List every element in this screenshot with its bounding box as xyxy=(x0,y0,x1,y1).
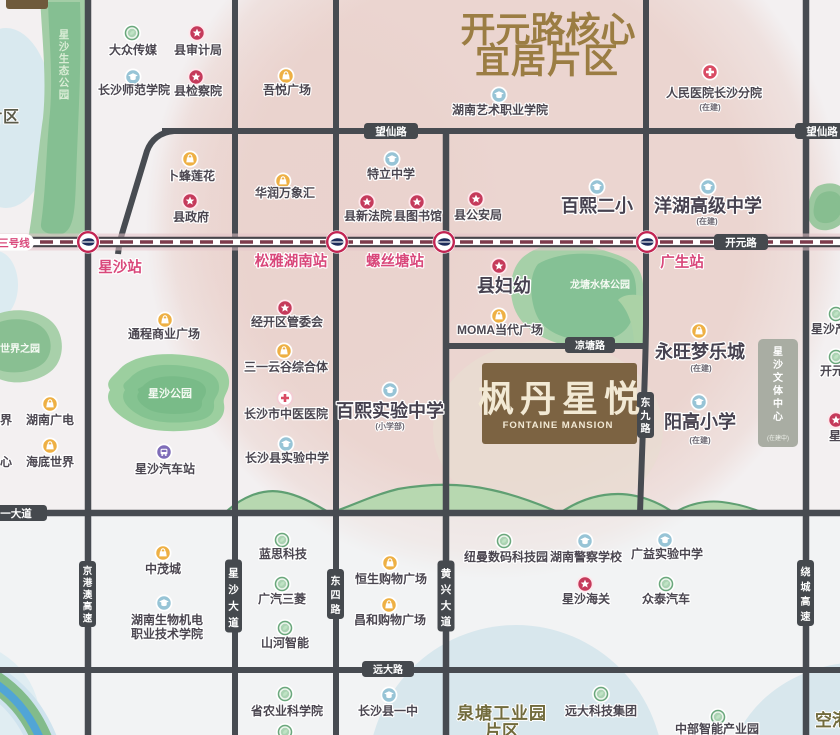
svg-text:宜居片区: 宜居片区 xyxy=(475,42,619,81)
svg-text:海底世界: 海底世界 xyxy=(26,454,74,469)
svg-text:永旺梦乐城: 永旺梦乐城 xyxy=(654,341,745,362)
svg-text:星沙公园: 星沙公园 xyxy=(148,387,192,400)
svg-text:县审计局: 县审计局 xyxy=(174,42,222,57)
svg-text:湖南艺术职业学院: 湖南艺术职业学院 xyxy=(452,102,548,117)
svg-text:中茂城: 中茂城 xyxy=(145,561,181,576)
svg-text:洋湖高级中学: 洋湖高级中学 xyxy=(654,195,762,216)
svg-text:东四路: 东四路 xyxy=(331,574,342,616)
svg-text:经开区管委会: 经开区管委会 xyxy=(251,314,324,329)
svg-text:湖南广电: 湖南广电 xyxy=(26,412,74,427)
svg-text:三一云谷综合体: 三一云谷综合体 xyxy=(244,359,329,374)
svg-text:长沙师范学院: 长沙师范学院 xyxy=(98,82,170,97)
svg-text:(在建): (在建) xyxy=(689,435,711,445)
svg-text:众泰汽车: 众泰汽车 xyxy=(642,591,690,606)
svg-text:(在建): (在建) xyxy=(699,102,721,112)
svg-text:百熙二小: 百熙二小 xyxy=(561,196,633,216)
svg-text:星沙产: 星沙产 xyxy=(811,321,840,336)
svg-text:湖南生物机电: 湖南生物机电 xyxy=(131,612,203,627)
svg-text:县政府: 县政府 xyxy=(173,209,209,224)
svg-text:星: 星 xyxy=(829,429,840,443)
svg-text:世界之园: 世界之园 xyxy=(0,342,40,355)
svg-text:卜蜂莲花: 卜蜂莲花 xyxy=(167,168,215,183)
svg-text:县新法院: 县新法院 xyxy=(344,208,392,223)
svg-text:片区: 片区 xyxy=(0,107,19,126)
svg-text:(在建): (在建) xyxy=(690,363,712,373)
svg-text:广益实验中学: 广益实验中学 xyxy=(631,546,703,561)
svg-text:蓝思科技: 蓝思科技 xyxy=(259,546,308,561)
svg-text:一大道: 一大道 xyxy=(0,507,32,520)
svg-text:星沙汽车站: 星沙汽车站 xyxy=(135,461,195,476)
svg-text:松雅湖南站: 松雅湖南站 xyxy=(255,252,328,270)
svg-text:县妇幼: 县妇幼 xyxy=(477,275,531,296)
svg-text:通程商业广场: 通程商业广场 xyxy=(128,326,200,341)
svg-text:枫丹星悦: 枫丹星悦 xyxy=(478,378,646,419)
svg-text:吾悦广场: 吾悦广场 xyxy=(263,82,311,97)
svg-text:MOMA当代广场: MOMA当代广场 xyxy=(457,322,543,337)
svg-text:长沙县一中: 长沙县一中 xyxy=(358,703,418,718)
svg-text:县图书馆: 县图书馆 xyxy=(394,208,442,223)
svg-text:(在建中): (在建中) xyxy=(767,434,789,442)
svg-text:山河智能: 山河智能 xyxy=(261,635,309,650)
svg-text:纽曼数码科技园: 纽曼数码科技园 xyxy=(464,549,548,564)
svg-text:县公安局: 县公安局 xyxy=(454,207,502,222)
svg-text:阳高小学: 阳高小学 xyxy=(664,411,736,432)
svg-text:星沙海关: 星沙海关 xyxy=(562,591,610,606)
svg-text:中心: 中心 xyxy=(0,454,12,469)
svg-text:职业技术学院: 职业技术学院 xyxy=(131,626,203,641)
svg-text:开元路: 开元路 xyxy=(725,236,757,249)
svg-text:广生站: 广生站 xyxy=(660,253,704,271)
svg-text:(在建): (在建) xyxy=(696,216,718,226)
svg-text:人民医院长沙分院: 人民医院长沙分院 xyxy=(666,85,762,100)
svg-text:湖南警察学校: 湖南警察学校 xyxy=(550,549,623,564)
svg-text:星沙站: 星沙站 xyxy=(98,258,142,276)
svg-text:恒生购物广场: 恒生购物广场 xyxy=(355,571,427,586)
svg-text:特立中学: 特立中学 xyxy=(367,166,415,181)
svg-text:省农业科学院: 省农业科学院 xyxy=(250,703,323,718)
svg-text:京港澳高速: 京港澳高速 xyxy=(83,565,93,624)
svg-text:龙塘水体公园: 龙塘水体公园 xyxy=(569,278,630,291)
svg-text:片区: 片区 xyxy=(485,721,519,735)
svg-text:(小学部): (小学部) xyxy=(375,421,405,431)
svg-text:FONTAINE MANSION: FONTAINE MANSION xyxy=(503,420,614,431)
svg-text:开元: 开元 xyxy=(820,364,840,378)
svg-text:远大科技集团: 远大科技集团 xyxy=(565,703,637,718)
svg-text:世界: 世界 xyxy=(0,412,12,427)
svg-text:望仙路: 望仙路 xyxy=(375,125,407,138)
svg-text:星沙生态公园: 星沙生态公园 xyxy=(59,29,70,101)
svg-text:百熙实验中学: 百熙实验中学 xyxy=(336,400,444,421)
svg-text:凉塘路: 凉塘路 xyxy=(575,339,606,352)
svg-text:远大路: 远大路 xyxy=(373,663,404,676)
svg-text:华润万象汇: 华润万象汇 xyxy=(255,185,315,200)
svg-text:中部智能产业园: 中部智能产业园 xyxy=(675,721,759,735)
svg-text:空港: 空港 xyxy=(815,710,840,730)
svg-text:昌和购物广场: 昌和购物广场 xyxy=(354,612,426,627)
svg-text:三号线: 三号线 xyxy=(0,237,30,250)
svg-text:县检察院: 县检察院 xyxy=(174,83,222,98)
svg-text:长沙市中医医院: 长沙市中医医院 xyxy=(244,406,328,421)
svg-text:望仙路: 望仙路 xyxy=(806,125,838,138)
svg-text:广汽三菱: 广汽三菱 xyxy=(258,591,306,606)
svg-text:大众传媒: 大众传媒 xyxy=(109,42,158,57)
svg-text:泉塘工业园: 泉塘工业园 xyxy=(456,703,547,723)
svg-text:长沙县实验中学: 长沙县实验中学 xyxy=(245,450,329,465)
svg-text:螺丝塘站: 螺丝塘站 xyxy=(366,252,424,270)
